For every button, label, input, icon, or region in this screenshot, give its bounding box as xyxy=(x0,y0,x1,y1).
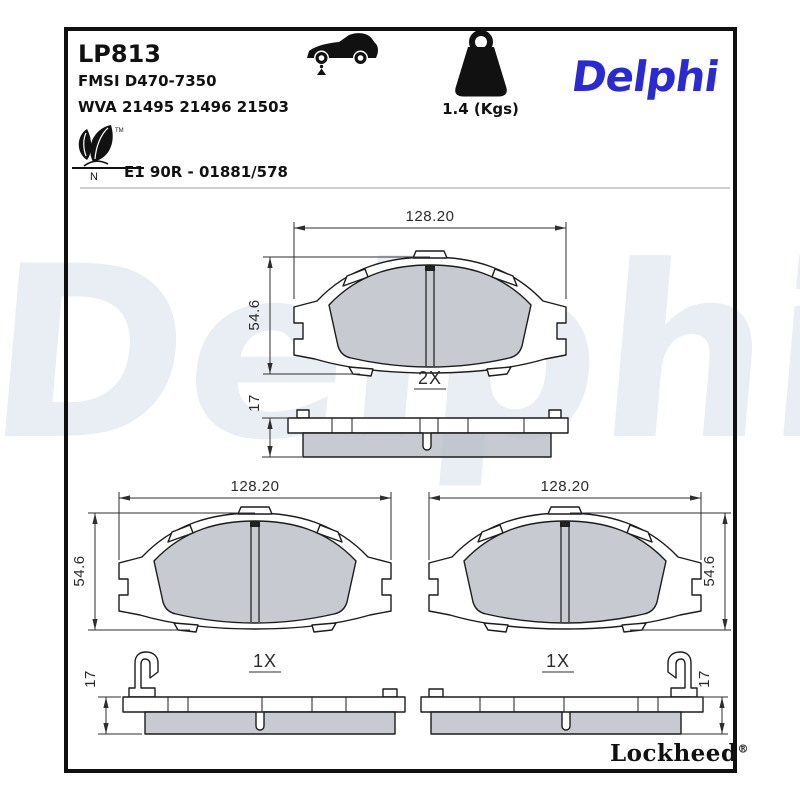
leaf-icon: TM N xyxy=(70,122,146,182)
dim-height-top: 54.6 xyxy=(246,299,263,330)
qty-top: 2X xyxy=(418,368,442,388)
wva-reference: WVA 21495 21496 21503 xyxy=(78,98,289,116)
dim-thickness-top: 17 xyxy=(246,394,263,412)
registered-mark: ® xyxy=(738,742,750,755)
ece-approval-number: E1 90R - 01881/578 xyxy=(124,163,288,181)
leaf-tm-mark: TM xyxy=(115,128,124,134)
dim-height-bottom-right: 54.6 xyxy=(701,555,718,586)
weight-icon xyxy=(450,30,512,100)
lockheed-logo: Lockheed® xyxy=(610,740,749,767)
dim-thickness-bottom-right: 17 xyxy=(696,670,713,688)
fmsi-reference: FMSI D470-7350 xyxy=(78,72,217,90)
dim-width-bottom-right: 128.20 xyxy=(541,478,590,495)
qty-bottom-left: 1X xyxy=(253,651,277,671)
datasheet-page: Delphi LP813 FMSI D470-7350 WVA 21495 21… xyxy=(0,0,800,800)
qty-bottom-right: 1X xyxy=(546,651,570,671)
technical-drawing: 128.20 54.6 2X xyxy=(0,0,800,800)
dim-width-bottom-left: 128.20 xyxy=(231,478,280,495)
delphi-logo: Delphi xyxy=(569,52,722,101)
drawing-bottom-left-pad: 128.20 54.6 1X 17 xyxy=(71,478,405,734)
leaf-n-mark: N xyxy=(90,171,98,182)
lockheed-wordmark: Lockheed xyxy=(610,740,738,767)
weight-value: 1.4 (Kgs) xyxy=(423,100,538,118)
car-icon xyxy=(304,30,382,76)
dim-thickness-bottom-left: 17 xyxy=(82,670,99,688)
axle-marker-dot xyxy=(320,65,323,68)
drawing-bottom-right-pad: 128.20 54.6 1X 17 xyxy=(421,478,731,734)
part-number: LP813 xyxy=(78,40,161,68)
dim-width-top: 128.20 xyxy=(406,208,455,225)
drawing-top-pad: 128.20 54.6 2X xyxy=(246,208,568,457)
dim-height-bottom-left: 54.6 xyxy=(71,555,88,586)
axle-marker-triangle xyxy=(317,69,326,76)
